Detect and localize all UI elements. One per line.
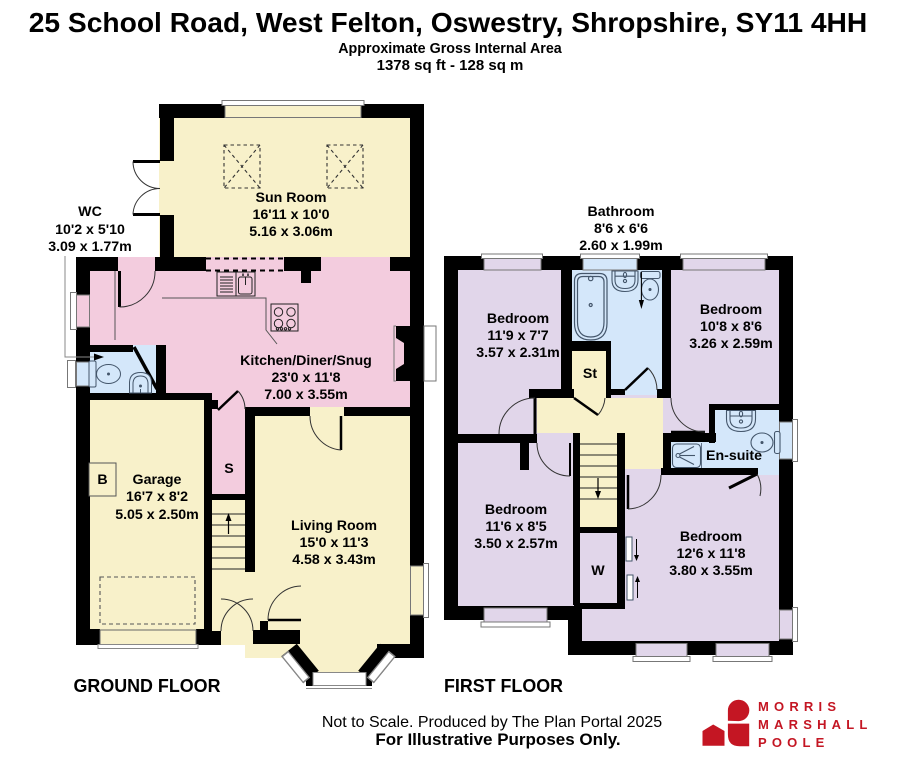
svg-text:Approximate Gross Internal Are: Approximate Gross Internal Area [338,41,563,57]
svg-text:10'2 x 5'10: 10'2 x 5'10 [55,222,125,238]
svg-text:3.50 x 2.57m: 3.50 x 2.57m [474,536,558,552]
svg-text:12'6 x 11'8: 12'6 x 11'8 [676,546,745,562]
svg-text:3.09 x 1.77m: 3.09 x 1.77m [48,239,132,255]
svg-text:1378 sq ft - 128 sq m: 1378 sq ft - 128 sq m [377,57,524,74]
svg-text:Bedroom: Bedroom [487,311,549,327]
svg-text:4.58 x 3.43m: 4.58 x 3.43m [292,552,376,568]
svg-text:23'0 x 11'8: 23'0 x 11'8 [271,370,340,386]
svg-text:MARSHALL: MARSHALL [758,717,873,732]
svg-text:Bedroom: Bedroom [680,529,742,545]
svg-text:For Illustrative Purposes Only: For Illustrative Purposes Only. [375,730,620,749]
svg-text:11'9 x 7'7: 11'9 x 7'7 [487,328,548,344]
svg-text:25 School Road, West Felton, O: 25 School Road, West Felton, Oswestry, S… [29,6,868,38]
svg-text:B: B [97,472,107,488]
svg-text:Living Room: Living Room [291,518,377,534]
svg-text:Garage: Garage [133,472,182,488]
svg-text:FIRST FLOOR: FIRST FLOOR [444,675,564,696]
svg-text:3.57 x 2.31m: 3.57 x 2.31m [476,345,560,361]
svg-text:8'6 x 6'6: 8'6 x 6'6 [594,221,648,237]
svg-text:Bedroom: Bedroom [485,502,547,518]
svg-text:En-suite: En-suite [706,448,762,464]
svg-text:St: St [583,366,597,382]
svg-text:10'8 x 8'6: 10'8 x 8'6 [700,319,762,335]
svg-text:Bathroom: Bathroom [588,204,655,220]
svg-text:7.00 x 3.55m: 7.00 x 3.55m [264,387,348,403]
svg-text:3.80 x 3.55m: 3.80 x 3.55m [669,563,753,579]
svg-text:MORRIS: MORRIS [758,699,841,714]
svg-text:GROUND FLOOR: GROUND FLOOR [74,675,222,696]
svg-text:5.16 x 3.06m: 5.16 x 3.06m [249,224,333,240]
svg-text:16'11 x 10'0: 16'11 x 10'0 [253,207,330,223]
svg-text:Kitchen/Diner/Snug: Kitchen/Diner/Snug [240,353,372,369]
svg-text:POOLE: POOLE [758,735,830,750]
svg-text:Not to Scale. Produced by The: Not to Scale. Produced by The Plan Porta… [322,714,662,731]
svg-text:2.60 x 1.99m: 2.60 x 1.99m [579,238,663,254]
svg-text:S: S [224,461,233,477]
svg-text:Sun Room: Sun Room [256,190,327,206]
svg-text:Bedroom: Bedroom [700,302,762,318]
svg-text:15'0 x 11'3: 15'0 x 11'3 [299,535,368,551]
svg-text:3.26 x 2.59m: 3.26 x 2.59m [689,336,773,352]
svg-text:16'7 x 8'2: 16'7 x 8'2 [126,489,188,505]
svg-text:W: W [591,563,605,579]
svg-text:WC: WC [78,204,102,220]
svg-text:5.05 x 2.50m: 5.05 x 2.50m [115,507,199,523]
svg-text:11'6 x 8'5: 11'6 x 8'5 [485,519,546,535]
